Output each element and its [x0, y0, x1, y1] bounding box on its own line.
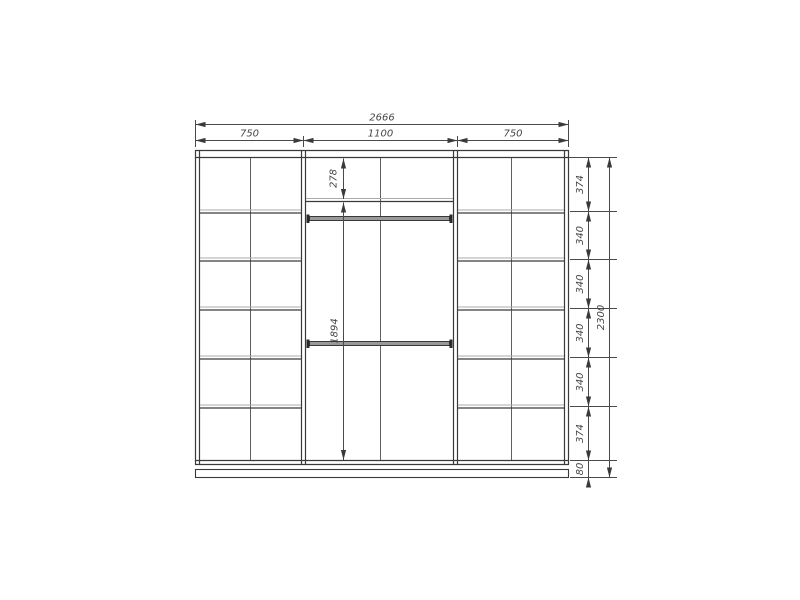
dim-label-total-height: 2300 — [596, 305, 607, 330]
base-plinth — [196, 470, 569, 478]
middle-section — [306, 158, 453, 460]
dim-label-base-height: 80 — [575, 463, 586, 476]
dim-label-hanging-height: 1894 — [330, 318, 341, 343]
dim-label-total-width: 2666 — [369, 113, 394, 124]
left-section-shelf-grid — [200, 158, 301, 460]
cabinet-structure — [195, 150, 569, 478]
dimension-annotations: 2666 750 1100 750 — [196, 113, 618, 487]
dim-label-left-section-width: 750 — [240, 129, 259, 140]
width-dimension-sections: 750 1100 750 — [196, 129, 569, 148]
height-dimension-total: 2300 — [596, 158, 610, 478]
dim-label-row-3: 340 — [575, 274, 586, 293]
section-divider-right — [454, 150, 458, 465]
section-divider-left — [302, 150, 306, 465]
drawing-canvas: 2666 750 1100 750 — [0, 0, 800, 600]
dim-label-top-shelf-height: 278 — [329, 169, 340, 188]
middle-interior-dimensions: 278 1894 — [329, 159, 344, 461]
dim-label-row-4: 340 — [575, 323, 586, 342]
dim-label-row-2: 340 — [575, 226, 586, 245]
wardrobe-technical-drawing: 2666 750 1100 750 — [0, 0, 800, 600]
dim-label-row-5: 340 — [575, 372, 586, 391]
dim-label-row-6: 374 — [575, 424, 586, 443]
lower-hanging-rod — [307, 340, 453, 349]
dim-label-row-1: 374 — [575, 175, 586, 194]
right-section-shelf-grid — [458, 158, 564, 460]
dim-label-right-section-width: 750 — [503, 129, 522, 140]
dim-label-middle-section-width: 1100 — [368, 129, 393, 140]
upper-hanging-rod — [307, 215, 453, 224]
